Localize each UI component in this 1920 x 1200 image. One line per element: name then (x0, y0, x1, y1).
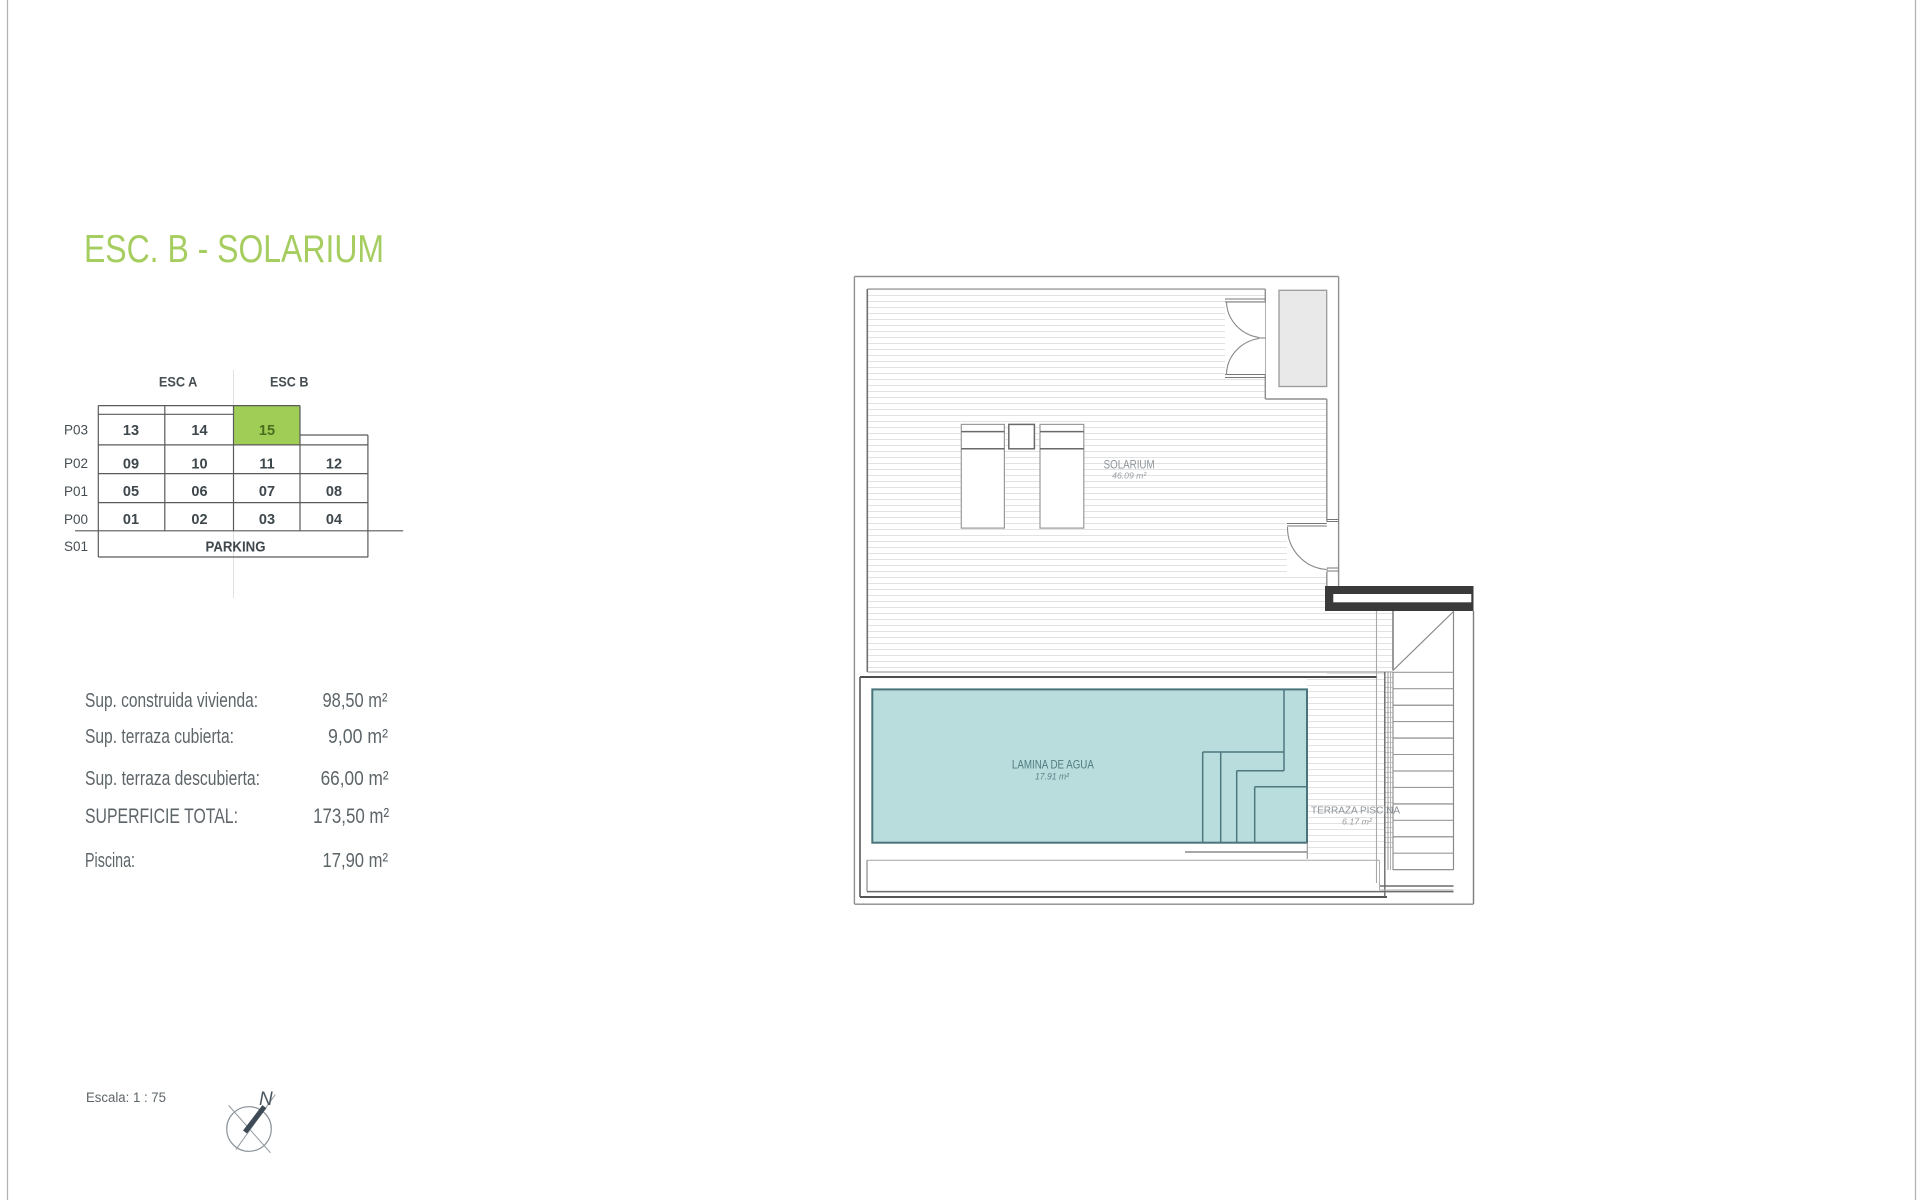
svg-text:12: 12 (326, 457, 342, 473)
svg-text:Escala: 1 : 75: Escala: 1 : 75 (86, 1090, 166, 1105)
svg-text:05: 05 (123, 484, 139, 500)
svg-text:N: N (259, 1089, 273, 1110)
svg-text:9,00 m²: 9,00 m² (328, 725, 388, 748)
svg-text:66,00 m²: 66,00 m² (321, 767, 389, 790)
svg-text:173,50 m²: 173,50 m² (313, 804, 389, 828)
svg-text:17,90 m²: 17,90 m² (323, 849, 389, 872)
svg-text:06: 06 (191, 484, 207, 500)
svg-text:03: 03 (259, 512, 275, 528)
svg-text:13: 13 (123, 423, 139, 439)
svg-text:09: 09 (123, 457, 139, 473)
svg-text:LAMINA DE AGUA: LAMINA DE AGUA (1012, 760, 1094, 772)
svg-text:PARKING: PARKING (206, 540, 266, 556)
svg-text:ESC. B - SOLARIUM: ESC. B - SOLARIUM (84, 228, 384, 271)
svg-text:ESC A: ESC A (159, 374, 198, 390)
svg-text:Piscina:: Piscina: (85, 849, 135, 872)
svg-text:6.17 m²: 6.17 m² (1342, 817, 1373, 827)
svg-text:07: 07 (259, 484, 275, 500)
svg-text:ESC B: ESC B (270, 374, 309, 390)
svg-text:Sup. construida vivienda:: Sup. construida vivienda: (85, 689, 258, 712)
svg-text:08: 08 (326, 484, 342, 500)
svg-text:17.91 m²: 17.91 m² (1035, 772, 1070, 782)
svg-text:15: 15 (259, 423, 275, 439)
svg-text:10: 10 (191, 457, 207, 473)
svg-text:TERRAZA PISCINA: TERRAZA PISCINA (1311, 805, 1400, 817)
svg-text:S01: S01 (64, 539, 88, 554)
svg-text:P03: P03 (64, 423, 88, 438)
svg-text:14: 14 (191, 423, 207, 439)
svg-text:01: 01 (123, 512, 139, 528)
svg-text:98,50 m²: 98,50 m² (323, 689, 388, 712)
svg-text:SUPERFICIE TOTAL:: SUPERFICIE TOTAL: (85, 804, 238, 828)
svg-text:11: 11 (259, 457, 274, 473)
svg-text:46.09 m²: 46.09 m² (1112, 471, 1147, 481)
svg-text:Sup. terraza cubierta:: Sup. terraza cubierta: (85, 725, 234, 748)
svg-text:P00: P00 (64, 512, 88, 527)
svg-text:Sup. terraza descubierta:: Sup. terraza descubierta: (85, 767, 260, 790)
svg-text:P01: P01 (64, 484, 88, 499)
svg-text:P02: P02 (64, 456, 88, 471)
svg-text:04: 04 (326, 512, 342, 528)
svg-text:02: 02 (191, 512, 207, 528)
